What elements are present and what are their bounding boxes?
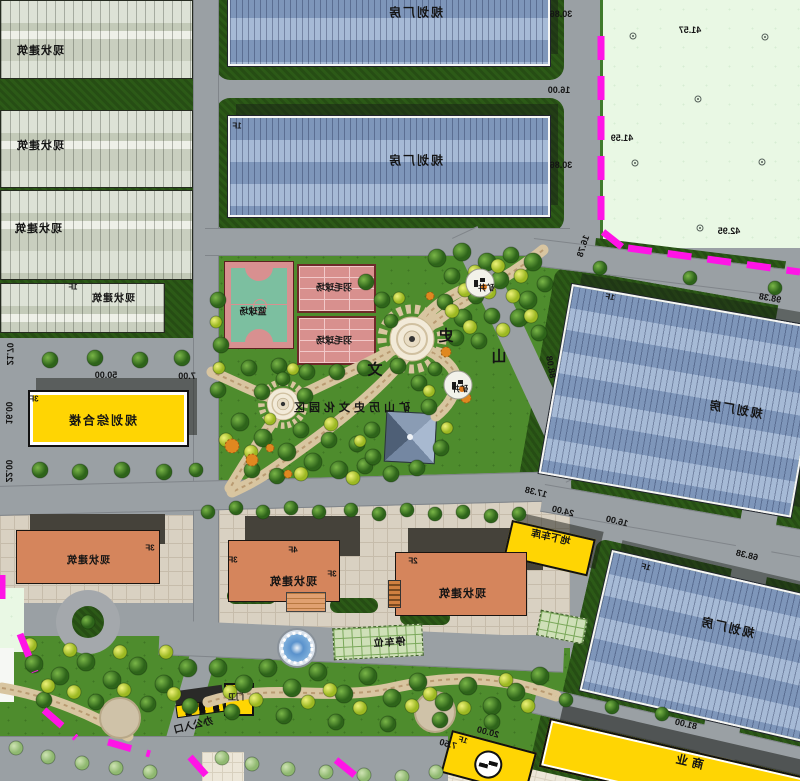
vacant-wedge-west	[0, 588, 24, 652]
pyramid-apex	[407, 434, 413, 440]
existing-building-nw-4	[0, 283, 165, 333]
existing-building-orange-w	[16, 530, 160, 584]
existing-building-nw-2	[0, 110, 193, 188]
tree-icon	[132, 352, 148, 368]
dim-label: 16.00	[548, 85, 571, 95]
vacant-parcel	[600, 0, 800, 248]
dim-label: 16.00	[4, 402, 14, 425]
logo-glyph	[479, 758, 498, 770]
gatehouse-booth	[224, 683, 254, 716]
logo-icon	[471, 747, 505, 781]
planned-complex-building	[28, 390, 189, 447]
tree-icon	[114, 462, 130, 478]
crosswalk	[202, 752, 244, 781]
roundabout-island	[72, 606, 104, 638]
tree-icon	[87, 350, 103, 366]
road-vertical-west	[193, 0, 219, 648]
existing-building-orange-a-annex	[286, 592, 326, 612]
tree-icon	[156, 464, 172, 480]
tree-icon	[42, 352, 58, 368]
bb-key-top	[245, 267, 273, 281]
white-wedge-west	[0, 648, 14, 702]
stairs-icon	[388, 580, 401, 608]
planned-factory-n2	[228, 116, 550, 217]
tree-icon	[174, 350, 190, 366]
existing-building-orange-b	[395, 552, 527, 616]
bb-center-circle	[253, 299, 267, 313]
badminton-court-1	[297, 264, 376, 313]
tree-icon	[32, 462, 48, 478]
road-park-north	[205, 228, 570, 256]
basketball-court	[225, 262, 293, 348]
dim-label: 50.00	[95, 370, 118, 380]
dim-label: 22.00	[4, 460, 14, 483]
planned-factory-n1	[228, 0, 550, 66]
parking-area	[332, 624, 424, 661]
glass-pyramid	[384, 411, 438, 465]
tree-icon	[72, 464, 88, 480]
existing-building-nw-1	[0, 0, 193, 79]
bb-key-bottom	[245, 329, 273, 343]
existing-building-nw-3	[0, 190, 193, 280]
badminton-court-2	[297, 316, 376, 365]
site-plan-canvas: 现状建筑现状建筑现状建筑现状建筑现状建筑现状建筑现状建筑规划厂房规划厂房规划厂房…	[0, 0, 800, 781]
dim-label: 21.70	[5, 343, 15, 366]
